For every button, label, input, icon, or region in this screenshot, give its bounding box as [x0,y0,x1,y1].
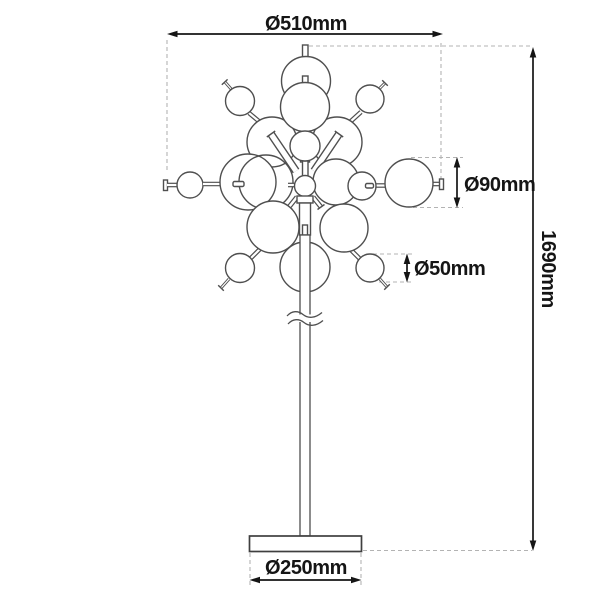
base [250,536,362,552]
glass-sphere [290,131,320,161]
socket-slot [366,184,374,189]
glass-sphere [247,201,299,253]
glass-sphere [356,254,384,282]
arrowhead-bottom [404,272,411,283]
glass-sphere [226,87,255,116]
dim-head-diameter: Ø510mm [167,13,443,37]
glass-sphere [356,85,384,113]
glass-sphere [281,83,330,132]
glass-sphere [177,172,203,198]
lamp-technical-drawing-svg: Ø510mm 1690mm Ø90mm Ø50mm Ø250mm [0,0,600,600]
socket-stem [303,161,309,176]
dim-large-globe: Ø90mm [454,157,536,208]
arrowhead-left [167,31,178,38]
dim-base-diameter-label: Ø250mm [265,557,347,579]
arrowhead-right [351,577,362,584]
glass-sphere [320,204,368,252]
arrowhead-top [530,47,537,58]
arm-end-cap [440,179,444,190]
arrowhead-top [404,254,411,265]
arrowhead-top [454,157,461,168]
glass-sphere [385,159,433,207]
lamp-stand [250,235,362,552]
socket-slot [233,182,244,187]
dim-overall-height-label: 1690mm [537,230,559,308]
dim-overall-height: 1690mm [530,47,559,551]
arrowhead-bottom [530,541,537,552]
arrowhead-bottom [454,198,461,209]
dim-large-globe-label: Ø90mm [464,174,535,196]
dim-head-diameter-label: Ø510mm [265,13,347,35]
hub [295,176,316,197]
holder-slot [303,225,308,235]
glass-sphere [226,254,255,283]
arm-end-cap [164,180,168,191]
dim-small-globe: Ø50mm [404,254,486,283]
arrowhead-left [250,577,261,584]
holder-cap [297,196,313,203]
arrowhead-right [433,31,444,38]
dim-base-diameter: Ø250mm [250,557,362,583]
pole [300,235,310,536]
dim-small-globe-label: Ø50mm [414,258,485,280]
lamp-dimension-drawing: Ø510mm 1690mm Ø90mm Ø50mm Ø250mm [0,0,600,600]
